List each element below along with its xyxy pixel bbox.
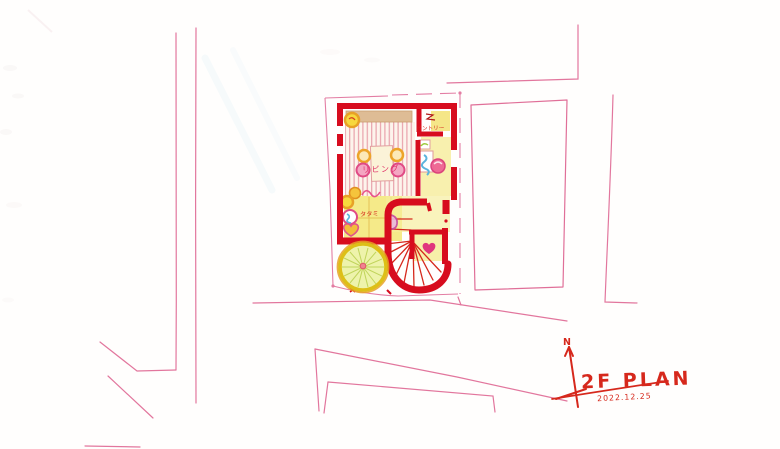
dining-table <box>370 146 393 182</box>
wall-tick <box>387 290 391 294</box>
floor-plan-drawing: リビング パントリー タタミ N 2F PLAN 2022.12.25 <box>0 0 780 449</box>
laundry-basket <box>431 159 445 173</box>
neighbor-building-outline <box>471 100 567 290</box>
wall-dot <box>444 219 447 222</box>
north-label: N <box>563 337 571 348</box>
garden-tree <box>338 242 389 293</box>
floor-plan-sketch-page: リビング パントリー タタミ N 2F PLAN 2022.12.25 <box>0 0 780 449</box>
living-label: リビング <box>362 163 400 174</box>
tree-trunk <box>360 263 366 269</box>
tatami-label: タタミ <box>360 209 379 218</box>
stool <box>345 113 359 127</box>
stair-top-wall-end <box>428 203 430 211</box>
title-block: N 2F PLAN 2022.12.25 <box>552 337 692 407</box>
pantry-label: パントリー <box>416 124 445 132</box>
plan-date: 2022.12.25 <box>597 391 652 403</box>
chair <box>358 150 370 162</box>
plan-title: 2F PLAN <box>581 368 692 394</box>
chair <box>391 149 403 161</box>
paper-smudges <box>0 10 380 303</box>
